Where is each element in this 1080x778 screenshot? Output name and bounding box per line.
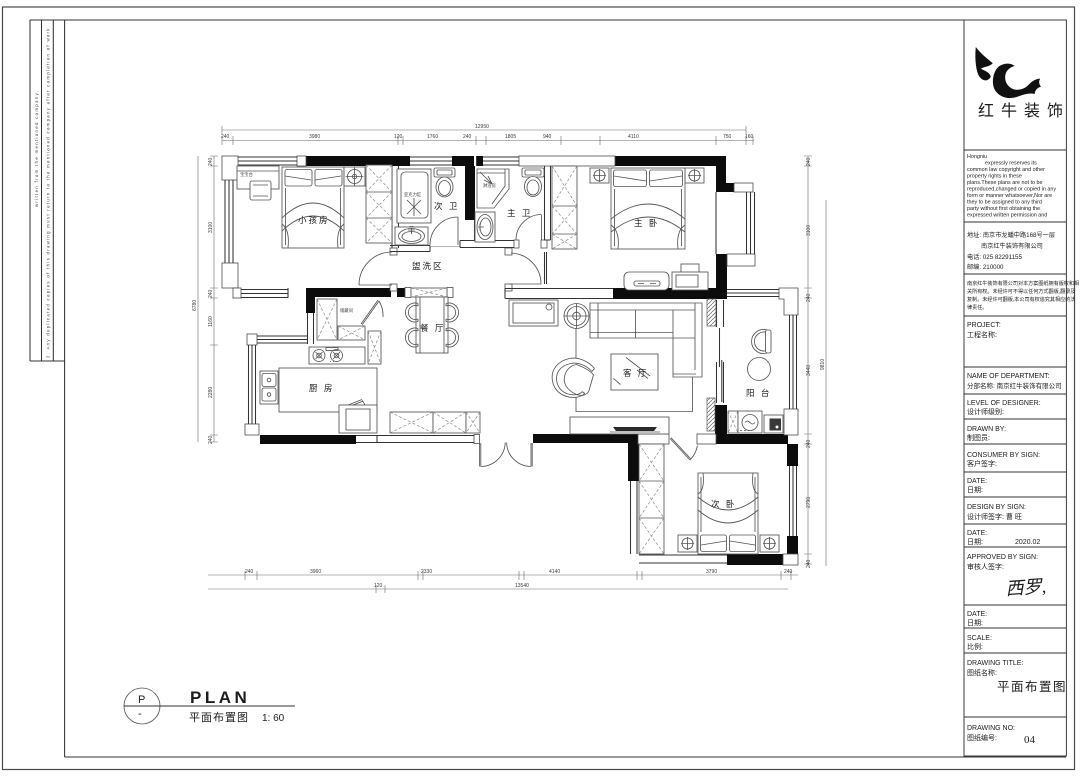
- svg-text:3100: 3100: [806, 225, 812, 236]
- svg-text:-: -: [138, 708, 142, 720]
- svg-text:expressly reserves its: expressly reserves its: [985, 161, 1037, 167]
- svg-text:APPROVED BY SIGN:: APPROVED BY SIGN:: [967, 554, 1038, 561]
- svg-text:平面布置图: 平面布置图: [997, 680, 1067, 694]
- svg-text:04: 04: [1024, 734, 1036, 746]
- svg-text:DATE:: DATE:: [967, 478, 987, 485]
- svg-text:关所有权。未经许可不得以任何方式翻版,翻录及: 关所有权。未经许可不得以任何方式翻版,翻录及: [967, 288, 1075, 295]
- svg-text:平面布置图: 平面布置图: [189, 711, 249, 724]
- svg-text:240: 240: [245, 569, 254, 575]
- svg-text:240: 240: [463, 134, 472, 140]
- svg-text:LEVEL OF DESIGNER:: LEVEL OF DESIGNER:: [967, 400, 1041, 407]
- svg-text:3980: 3980: [309, 134, 320, 140]
- svg-text:淋浴房: 淋浴房: [483, 182, 496, 189]
- svg-text:宝宝台: 宝宝台: [240, 171, 253, 178]
- svg-text:expressed written permission a: expressed written permission and: [967, 213, 1047, 219]
- svg-text:240: 240: [208, 289, 214, 298]
- svg-text:餐 厅: 餐 厅: [420, 323, 445, 333]
- svg-text:120: 120: [394, 134, 403, 140]
- svg-text:客户签字:: 客户签字:: [967, 459, 997, 468]
- svg-text:240: 240: [784, 569, 793, 575]
- svg-text:客 厅: 客 厅: [623, 368, 648, 378]
- svg-text:property rights in these: property rights in these: [967, 174, 1022, 180]
- svg-text:分部名称: 南京红牛装饰有限公司: 分部名称: 南京红牛装饰有限公司: [967, 381, 1062, 390]
- svg-text:南京红牛装饰有限公司: 南京红牛装饰有限公司: [981, 242, 1043, 250]
- svg-text:2790: 2790: [806, 497, 812, 508]
- svg-text:13540: 13540: [515, 583, 529, 589]
- svg-text:they to be assigned to any th: they to be assigned to any third: [967, 200, 1042, 206]
- svg-text:邮编: 210000: 邮编: 210000: [967, 263, 1004, 271]
- svg-text:南京红牛装饰有限公司对本方案图纸拥有版权和相: 南京红牛装饰有限公司对本方案图纸拥有版权和相: [967, 280, 1079, 287]
- svg-text:9810: 9810: [820, 359, 826, 370]
- svg-text:PROJECT:: PROJECT:: [967, 322, 1001, 329]
- svg-text:1760: 1760: [427, 134, 438, 140]
- svg-text:审核人签字:: 审核人签字:: [967, 562, 1004, 571]
- svg-text:红牛装饰: 红牛装饰: [978, 102, 1070, 120]
- svg-text:750: 750: [723, 134, 732, 140]
- svg-text:电话: 025 82291155: 电话: 025 82291155: [967, 253, 1022, 261]
- svg-text:设计师签字: 曹 旺: 设计师签字: 曹 旺: [967, 512, 1022, 521]
- svg-text:DATE:: DATE:: [967, 530, 987, 537]
- svg-text:主 卧: 主 卧: [634, 218, 659, 228]
- svg-text:1: 60: 1: 60: [262, 713, 285, 724]
- svg-text:厨 房: 厨 房: [309, 383, 334, 393]
- svg-text:DRAWING TITLE:: DRAWING TITLE:: [967, 660, 1023, 667]
- svg-text:SCALE:: SCALE:: [967, 635, 992, 642]
- svg-text:地址: 南京市龙蟠中路168号一层: 地址: 南京市龙蟠中路168号一层: [967, 231, 1055, 239]
- svg-text:P: P: [138, 694, 145, 706]
- svg-text:Hongniu: Hongniu: [967, 154, 987, 160]
- svg-text:6780: 6780: [192, 300, 198, 311]
- svg-text:3100: 3100: [208, 222, 214, 233]
- svg-text:主 卫: 主 卫: [507, 208, 532, 218]
- svg-text:120: 120: [374, 583, 383, 589]
- svg-text:240: 240: [806, 293, 812, 302]
- svg-text:制图员:: 制图员:: [967, 433, 990, 442]
- svg-text:160: 160: [745, 134, 754, 140]
- svg-text:次 卧: 次 卧: [711, 499, 736, 509]
- svg-text:PLAN: PLAN: [190, 688, 250, 707]
- svg-text:2330: 2330: [421, 569, 432, 575]
- svg-text:240: 240: [806, 559, 812, 568]
- svg-text:小孩房: 小孩房: [298, 215, 330, 225]
- svg-text:次 卫: 次 卫: [434, 201, 459, 211]
- svg-text:CONSUMER BY SIGN:: CONSUMER BY SIGN:: [967, 452, 1040, 459]
- svg-text:储藏间: 储藏间: [340, 307, 353, 314]
- svg-text:工程名称:: 工程名称:: [967, 330, 997, 339]
- svg-text:240: 240: [221, 134, 230, 140]
- svg-text:plans.These plans are not to b: plans.These plans are not to be: [967, 180, 1043, 186]
- svg-text:律责任。: 律责任。: [967, 304, 987, 311]
- svg-text:240: 240: [208, 157, 214, 166]
- svg-text:设计师级别:: 设计师级别:: [967, 407, 1004, 416]
- svg-text:盥洗区: 盥洗区: [412, 261, 444, 271]
- svg-text:日期:: 日期:: [967, 486, 983, 494]
- svg-text:12950: 12950: [475, 124, 489, 130]
- svg-text:written from the mentioned com: written from the mentioned company,: [34, 91, 39, 207]
- svg-text:3790: 3790: [706, 569, 717, 575]
- svg-text:DRAWN BY:: DRAWN BY:: [967, 426, 1006, 433]
- svg-text:阳 台: 阳 台: [746, 388, 771, 398]
- svg-text:240: 240: [806, 157, 812, 166]
- svg-text:日期:: 日期:: [967, 538, 983, 546]
- svg-text:3440: 3440: [806, 365, 812, 376]
- svg-text:日期:: 日期:: [967, 619, 983, 627]
- svg-text:DATE:: DATE:: [967, 611, 987, 618]
- svg-text:西罗,: 西罗,: [1005, 576, 1047, 599]
- svg-text:1160: 1160: [208, 316, 214, 327]
- svg-text:比例:: 比例:: [967, 642, 983, 651]
- svg-text:3960: 3960: [310, 569, 321, 575]
- svg-text:1805: 1805: [505, 134, 516, 140]
- svg-text:reproduced,changed or copied i: reproduced,changed or copied in any: [967, 187, 1056, 193]
- svg-text:复制。未经许可翻版,本公司有权追究其相应的法: 复制。未经许可翻版,本公司有权追究其相应的法: [967, 296, 1075, 303]
- svg-text:图纸名称:: 图纸名称:: [967, 668, 997, 677]
- svg-text:940: 940: [543, 134, 552, 140]
- svg-text:NAME OF DEPARTMENT:: NAME OF DEPARTMENT:: [967, 373, 1050, 380]
- svg-text:DRAWING NO:: DRAWING NO:: [967, 725, 1015, 732]
- svg-text:2020.02: 2020.02: [1015, 539, 1040, 546]
- svg-text:240: 240: [208, 435, 214, 444]
- svg-text:form or manner whatsoever,Nor: form or manner whatsoever,Nor are: [967, 193, 1052, 199]
- svg-text:4110: 4110: [628, 134, 639, 140]
- svg-text:4140: 4140: [549, 569, 560, 575]
- svg-text:240: 240: [806, 439, 812, 448]
- svg-text:common law copyright and other: common law copyright and other: [967, 167, 1045, 173]
- svg-text:图纸编号:: 图纸编号:: [967, 733, 997, 742]
- svg-text:DESIGN BY SIGN:: DESIGN BY SIGN:: [967, 504, 1026, 511]
- svg-text:party without first obtaining: party without first obtaining the: [967, 206, 1040, 212]
- svg-text:2280: 2280: [208, 387, 214, 398]
- svg-text:亚克力缸: 亚克力缸: [404, 191, 422, 198]
